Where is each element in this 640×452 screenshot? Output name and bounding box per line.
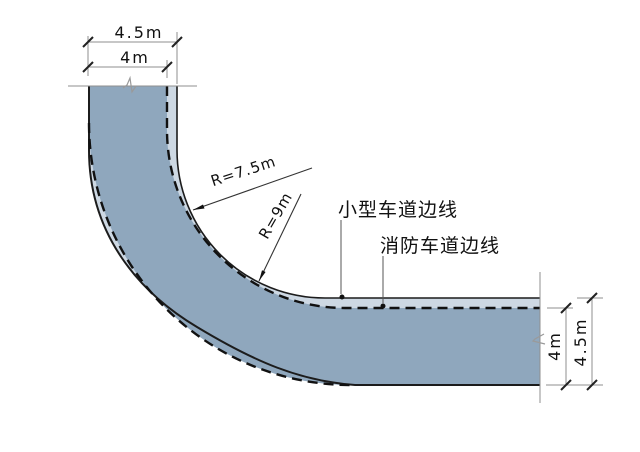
dim-label-top-inner: 4m <box>120 48 150 67</box>
leader-dot <box>381 304 386 309</box>
label-small-vehicle-lane-edge: 小型车道边线 <box>338 199 458 221</box>
dim-label-top-outer: 4.5m <box>114 23 163 42</box>
radius-label-small-vehicle: R=7.5m <box>209 152 279 190</box>
fire-lane-turning-diagram: 4.5m 4m 4m 4.5m R=7.5m R=9m <box>0 0 640 452</box>
leader-dot <box>340 295 345 300</box>
arrow-icon <box>259 270 266 281</box>
diagram-canvas: 4.5m 4m 4m 4.5m R=7.5m R=9m <box>0 0 640 452</box>
dim-label-right-inner: 4m <box>545 331 564 361</box>
label-fire-lane-edge: 消防车道边线 <box>380 235 500 257</box>
top-dimensions: 4.5m 4m <box>83 23 182 84</box>
dim-label-right-outer: 4.5m <box>571 317 590 366</box>
radius-callout-fire-lane: R=9m <box>255 189 301 281</box>
arrow-icon <box>193 205 205 211</box>
right-dimensions: 4m 4.5m <box>545 293 603 390</box>
